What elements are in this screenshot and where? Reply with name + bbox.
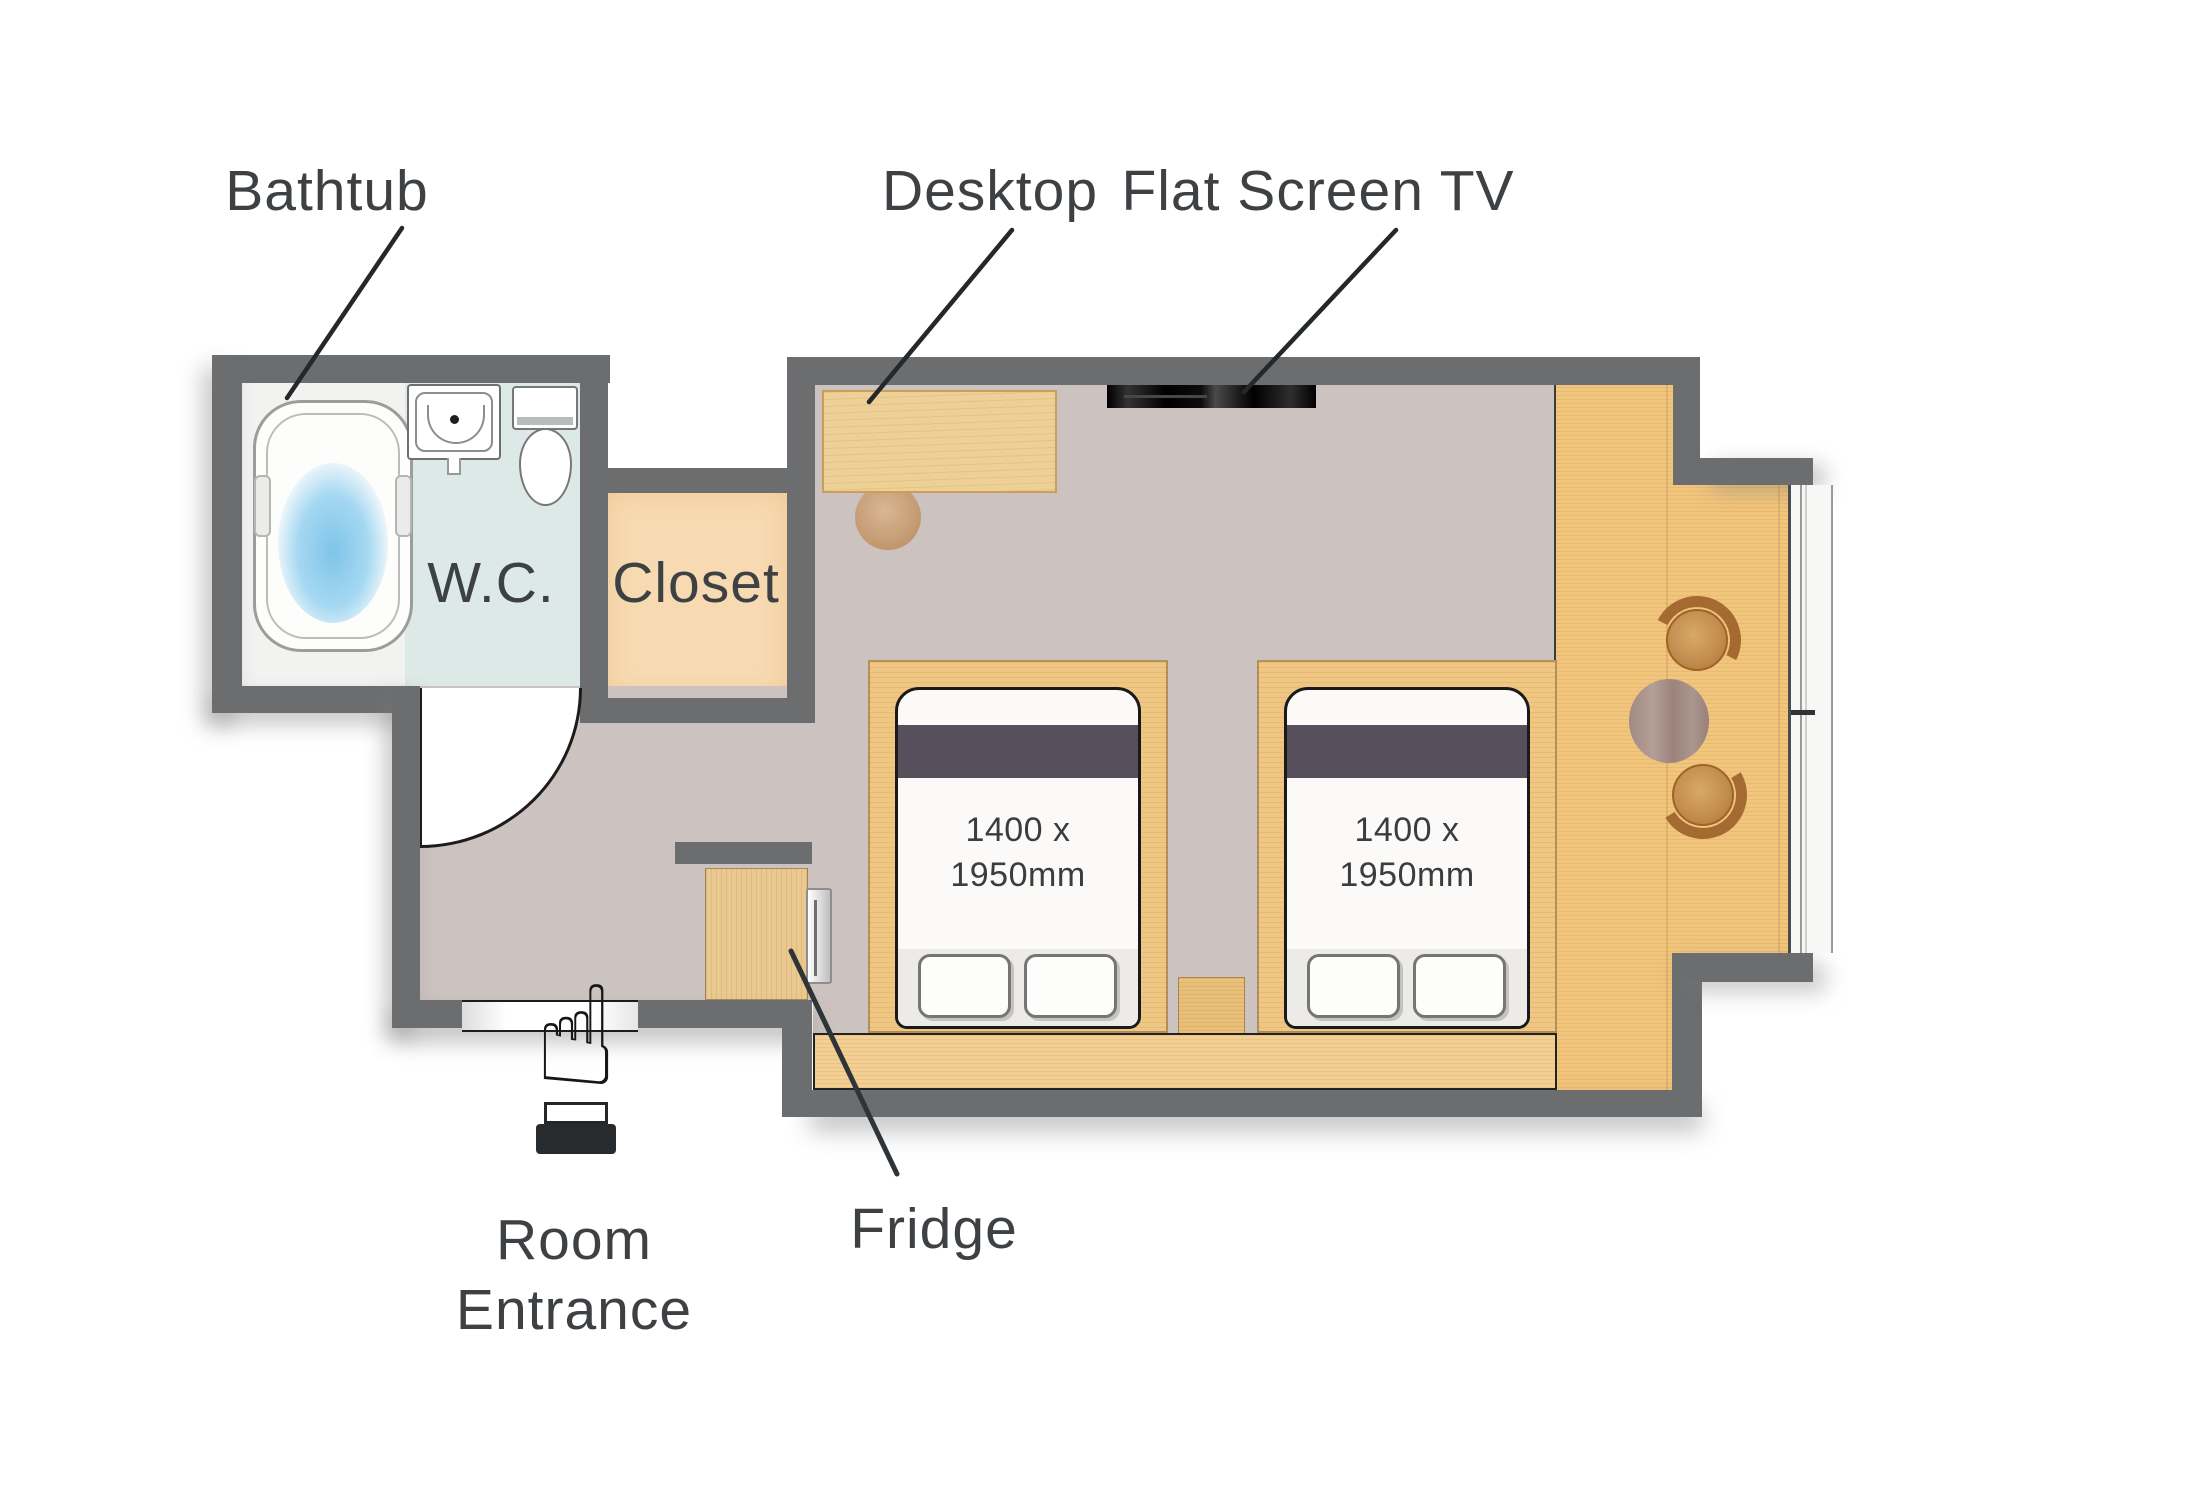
exterior-top-right	[1700, 340, 1840, 458]
wall-bathroom-left	[212, 355, 242, 713]
bed-2-mattress: 1400 x 1950mm	[1284, 687, 1530, 1029]
label-flat-screen-tv: Flat Screen TV	[1121, 158, 1514, 224]
bed-2-platform: 1400 x 1950mm	[1257, 660, 1557, 1033]
wall-bathroom-bottom	[212, 686, 420, 713]
wall-bathroom-right	[580, 355, 608, 723]
bed-1-pillow	[1024, 954, 1117, 1018]
fridge-cabinet	[705, 868, 808, 1000]
chair-seat	[1672, 764, 1734, 826]
wall-bedroom-left	[787, 357, 815, 723]
label-fridge: Fridge	[850, 1196, 1018, 1262]
label-desktop: Desktop	[882, 158, 1098, 224]
bed-1-dimensions: 1400 x 1950mm	[898, 808, 1138, 898]
toilet-tank	[512, 386, 578, 430]
label-closet: Closet	[612, 550, 780, 616]
wall-connector	[782, 1000, 812, 1117]
window-glazing	[1788, 485, 1833, 953]
exterior-bottom-right	[1702, 982, 1842, 1132]
window-divider	[1791, 710, 1815, 715]
sink	[407, 384, 501, 460]
wall-bedroom-top	[787, 357, 1700, 385]
window-frame-line	[1805, 485, 1807, 953]
wall-step-top-right-horizontal	[1700, 458, 1813, 485]
wall-bedroom-bottom	[810, 1090, 1702, 1117]
wall-hallway-left	[392, 686, 420, 1028]
bed-2-dimensions: 1400 x 1950mm	[1287, 808, 1527, 898]
bed-2-blanket-band	[1287, 725, 1527, 778]
sink-stub	[447, 458, 461, 475]
pointing-hand-icon: ☝	[506, 968, 646, 1168]
flat-screen-tv	[1107, 385, 1316, 408]
bed-1-dim-line1: 1400 x	[965, 811, 1070, 849]
chair-seat	[1666, 609, 1728, 671]
sink-faucet	[450, 415, 459, 424]
wall-bathroom-top	[212, 355, 610, 383]
window-frame-line	[1800, 485, 1802, 953]
wall-step-top-right-vertical	[1673, 385, 1700, 485]
floor-plan: 1400 x 1950mm 1400 x 1950mm ☝	[0, 0, 2188, 1496]
bathtub-grip	[395, 475, 412, 537]
wall-closet-bottom	[580, 698, 815, 723]
bed-2-pillow	[1413, 954, 1506, 1018]
bed-2-pillow	[1307, 954, 1400, 1018]
desk-chair	[855, 484, 921, 550]
label-bathtub: Bathtub	[225, 158, 429, 224]
label-room-entrance-line1: Room	[496, 1208, 652, 1272]
desk	[822, 390, 1057, 493]
fridge-handle	[814, 900, 817, 976]
wall-step-bottom-right-horizontal	[1672, 953, 1813, 982]
wall-fridge-alcove	[675, 842, 812, 864]
fridge	[806, 888, 832, 984]
bed-1-platform: 1400 x 1950mm	[868, 660, 1168, 1033]
bed-1-blanket-band	[898, 725, 1138, 778]
bed-1-dim-line2: 1950mm	[950, 856, 1085, 894]
bathtub-grip	[254, 475, 271, 537]
bed-1-mattress: 1400 x 1950mm	[895, 687, 1141, 1029]
wall-closet-top	[580, 468, 815, 493]
bench-ledge	[813, 1033, 1557, 1090]
bed-1-pillow	[918, 954, 1011, 1018]
pointing-hand-glyph: ☝	[506, 968, 646, 1106]
label-room-entrance-line2: Entrance	[456, 1278, 692, 1342]
label-wc: W.C.	[427, 550, 555, 616]
toilet-tank-lid	[517, 417, 573, 425]
label-room-entrance: Room Entrance	[456, 1205, 692, 1345]
bathtub	[253, 400, 413, 652]
tv-detail-line	[1124, 395, 1208, 398]
pointing-hand-wrist	[544, 1102, 608, 1124]
bed-2-dim-line2: 1950mm	[1339, 856, 1474, 894]
bathtub-water	[278, 463, 388, 623]
bed-2-dim-line1: 1400 x	[1354, 811, 1459, 849]
pointing-hand-base	[536, 1124, 616, 1154]
nightstand	[1178, 977, 1245, 1034]
